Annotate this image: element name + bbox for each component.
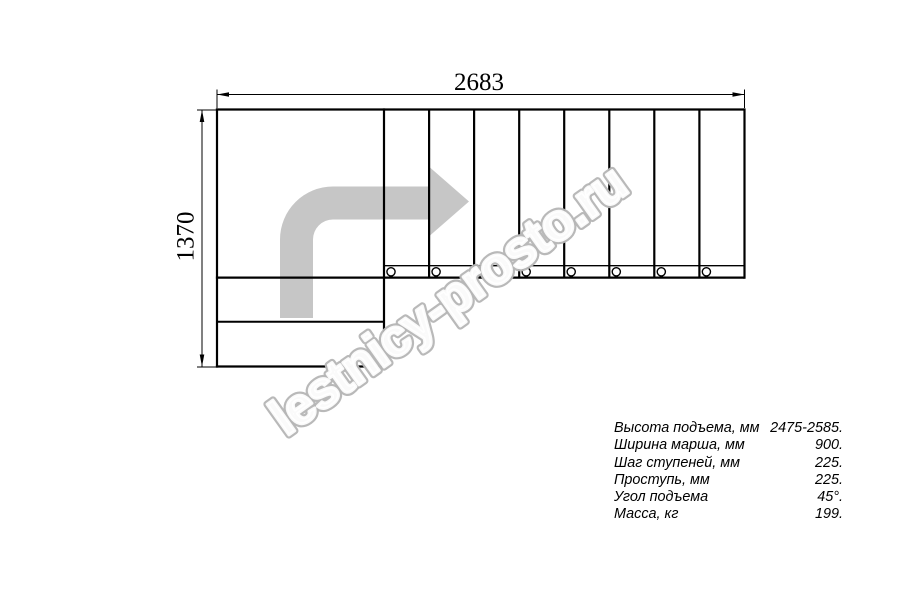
svg-text:1370: 1370: [173, 212, 200, 262]
svg-text:2683: 2683: [454, 69, 504, 96]
